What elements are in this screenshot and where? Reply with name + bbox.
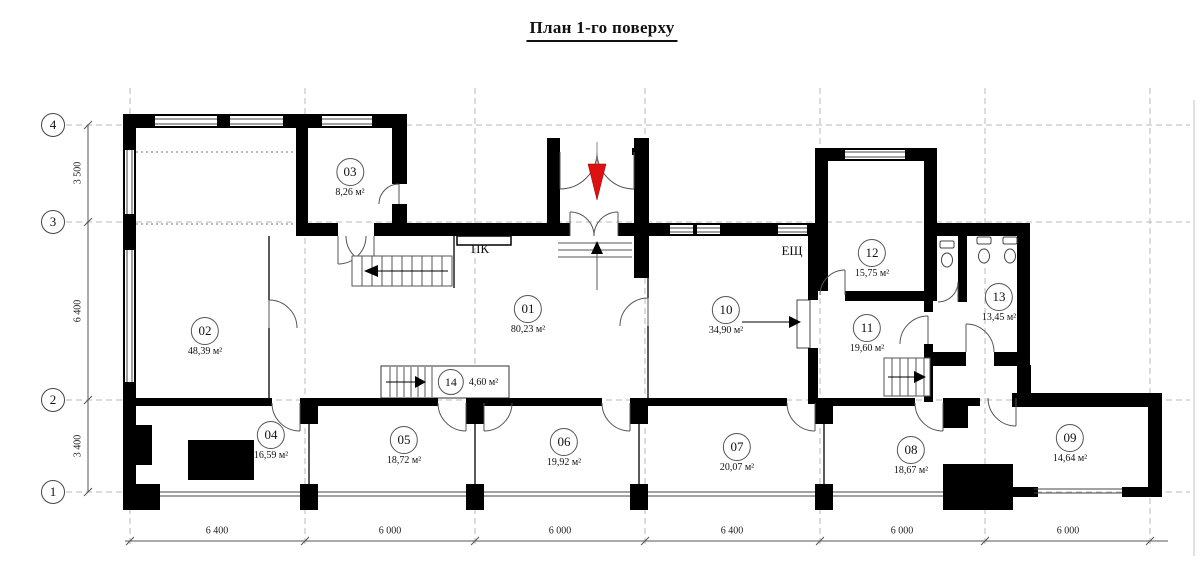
room-number: 14 (438, 369, 464, 395)
room-label-13: 13 13,45 м² (982, 283, 1016, 323)
room-number: 05 (390, 426, 418, 454)
axis-row-2: 2 (41, 388, 65, 412)
room-number: 08 (897, 436, 925, 464)
axis-row-4: 4 (41, 113, 65, 137)
room-area: 4,60 м² (469, 377, 498, 388)
room-label-10: 10 34,90 м² (709, 296, 743, 336)
room-label-01: 01 80,23 м² (511, 295, 545, 335)
room-area: 19,92 м² (547, 457, 581, 468)
room-area: 18,67 м² (894, 465, 928, 476)
dim-col-3: 6 400 (719, 526, 746, 537)
room-label-12: 12 15,75 м² (855, 239, 889, 279)
label-esch: ЕЩ (781, 243, 802, 259)
dim-col-4: 6 000 (889, 526, 916, 537)
dim-col-1: 6 000 (377, 526, 404, 537)
room-label-06: 06 19,92 м² (547, 428, 581, 468)
room-number: 10 (712, 296, 740, 324)
room-area: 14,64 м² (1053, 453, 1087, 464)
room-number: 07 (723, 433, 751, 461)
room-number: 04 (257, 421, 285, 449)
overhead-dotted-lines (136, 152, 293, 224)
toilet-icon (977, 237, 991, 263)
room-area: 48,39 м² (188, 346, 222, 357)
floor-plan-page: План 1-го поверху 4 3 2 1 3 500 6 400 3 … (0, 0, 1200, 561)
room-area: 15,75 м² (855, 268, 889, 279)
room-number: 01 (514, 295, 542, 323)
equipment-block (188, 440, 254, 480)
toilet-icon (940, 241, 954, 267)
room-label-08: 08 18,67 м² (894, 436, 928, 476)
room-number: 02 (191, 317, 219, 345)
floorplan-drawing (0, 0, 1200, 561)
room-label-07: 07 20,07 м² (720, 433, 754, 473)
dim-col-0: 6 400 (204, 526, 231, 537)
room-area: 20,07 м² (720, 462, 754, 473)
dim-row-0: 3 500 (73, 160, 84, 187)
dim-row-2: 3 400 (73, 433, 84, 460)
stairs-icon (352, 256, 452, 286)
dim-col-5: 6 000 (1055, 526, 1082, 537)
room-area: 34,90 м² (709, 325, 743, 336)
room-number: 12 (858, 239, 886, 267)
stairs-icon (884, 358, 930, 396)
room-area: 16,59 м² (254, 450, 288, 461)
room-number: 03 (336, 158, 364, 186)
page-title: План 1-го поверху (526, 18, 677, 42)
room-number: 11 (853, 314, 881, 342)
room-area: 19,60 м² (850, 343, 884, 354)
label-pk: ПК (471, 241, 489, 257)
room-number: 06 (550, 428, 578, 456)
room-label-14: 14 4,60 м² (438, 369, 498, 395)
toilet-icon (1003, 237, 1017, 263)
stairs-icon (558, 241, 632, 290)
room-label-03: 03 8,26 м² (335, 158, 364, 198)
room-label-05: 05 18,72 м² (387, 426, 421, 466)
dim-col-2: 6 000 (547, 526, 574, 537)
room-label-04: 04 16,59 м² (254, 421, 288, 461)
direction-arrow-icon (742, 316, 801, 328)
room-area: 80,23 м² (511, 324, 545, 335)
room-area: 8,26 м² (335, 187, 364, 198)
axis-row-3: 3 (41, 210, 65, 234)
room-number: 13 (985, 283, 1013, 311)
room-label-11: 11 19,60 м² (850, 314, 884, 354)
room-area: 13,45 м² (982, 312, 1016, 323)
dim-row-1: 6 400 (73, 298, 84, 325)
room-label-02: 02 48,39 м² (188, 317, 222, 357)
room-label-09: 09 14,64 м² (1053, 424, 1087, 464)
entrance-arrow-icon (588, 142, 606, 200)
room-area: 18,72 м² (387, 455, 421, 466)
room-number: 09 (1056, 424, 1084, 452)
axis-row-1: 1 (41, 480, 65, 504)
